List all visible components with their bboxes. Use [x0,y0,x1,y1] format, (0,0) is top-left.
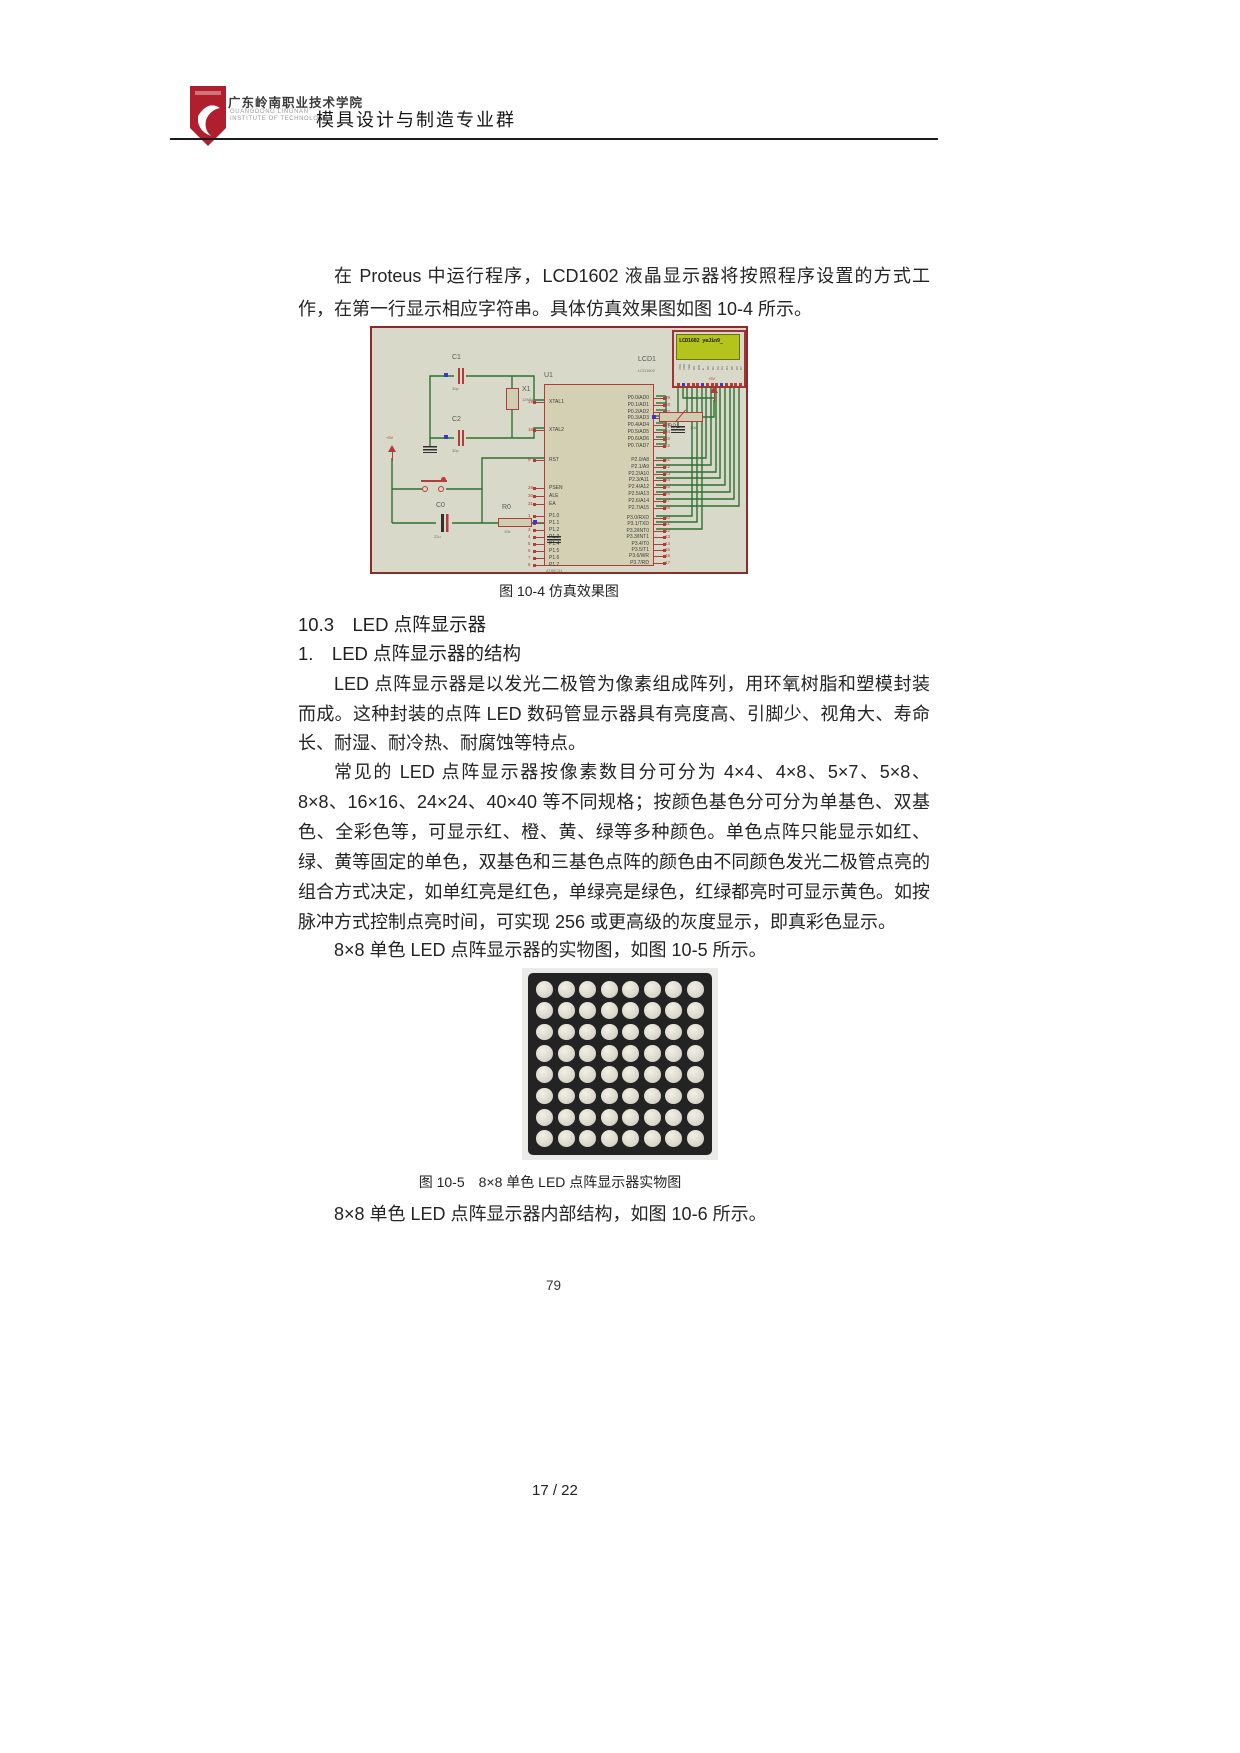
led-dot [536,1088,553,1105]
ground-r0-icon [547,536,561,544]
led-dot [536,1045,553,1062]
college-name-english: GUANGDONG LINGNAN INSTITUTE OF TECHNOLOG… [230,109,328,123]
led-dot [601,1002,618,1019]
led-dot [665,1088,682,1105]
u1-pin-p1-6: 7P1.6 [545,555,559,561]
r0-ref-label: R0 [502,504,511,511]
led-dot [558,1045,575,1062]
led-dot [687,1109,704,1126]
c0-capacitor [438,514,451,532]
led-dot [622,1088,639,1105]
led-dot [665,1002,682,1019]
led-dot [536,1130,553,1147]
led-dot [536,981,553,998]
figure-10-5-caption: 图 10-5 8×8 单色 LED 点阵显示器实物图 [370,1172,730,1192]
lcd-ref-label: LCD1 [638,356,656,363]
led-dot [665,1045,682,1062]
c0-value-label: 22u [434,534,441,539]
u1-pin-p2-5-a13: 26P2.5/A13 [628,491,653,497]
paragraph-5: 8×8 单色 LED 点阵显示器内部结构，如图 10-6 所示。 [298,1200,930,1230]
u1-pin-p3-3-int1: 13P3.3/INT1 [626,534,653,540]
u1-pin-rst: 9RST [545,457,559,463]
subsection-title-1: 1. LED 点阵显示器的结构 [298,640,521,666]
r0-pad [533,520,537,524]
c1-value-label: 30p [452,386,459,391]
lcd-screen: LCD1602 yeJin9_ [676,334,740,360]
led-dot [687,1024,704,1041]
led-dot [536,1002,553,1019]
led-dot [644,1024,661,1041]
u1-pin-p0-4-ad4: 35P0.4/AD4 [628,422,653,428]
u1-pin-p2-0-a8: 21P2.0/A8 [631,457,653,463]
u1-pin-p3-1-txd: 11P3.1/TXD [627,521,653,527]
c0-ref-label: C0 [436,502,445,509]
led-dot [622,981,639,998]
led-dot [687,1066,704,1083]
document-page: 广东岭南职业技术学院 GUANGDONG LINGNAN INSTITUTE O… [0,0,1240,1753]
u1-pin-p0-6-ad6: 33P0.6/AD6 [628,436,653,442]
paragraph-1: 在 Proteus 中运行程序，LCD1602 液晶显示器将按照程序设置的方式工… [298,260,930,326]
ground-rp1-icon [671,426,685,434]
led-dot [622,1066,639,1083]
led-dot [601,1109,618,1126]
plus5v-right-label: +5V [708,376,715,381]
u1-pin-p2-1-a9: 22P2.1/A9 [631,464,653,470]
led-dot [558,981,575,998]
led-dot [644,1130,661,1147]
c2-capacitor [454,430,466,446]
led-dot [558,1066,575,1083]
led-dot [579,1002,596,1019]
c2-pad [444,435,448,439]
u1-pin-p0-7-ad7: 32P0.7/AD7 [628,443,653,449]
u1-ref-label: U1 [544,372,553,379]
led-dot [644,981,661,998]
led-dot [665,1109,682,1126]
led-dot [536,1109,553,1126]
r0-value-label: 10k [504,529,510,534]
led-dot [558,1088,575,1105]
header-title: 模具设计与制造专业群 [316,106,516,132]
led-dot [579,981,596,998]
led-dot [579,1088,596,1105]
book-page-number: 79 [546,1278,561,1293]
u1-pin-p0-1-ad1: 38P0.1/AD1 [628,402,653,408]
c1-pad [444,373,448,377]
u1-pin-p1-1: 2P1.1 [545,520,559,526]
led-dot [579,1024,596,1041]
u1-pin-p2-6-a14: 27P2.6/A14 [628,498,653,504]
u1-pin-p3-7-rd: 17P3.7/RD [630,560,653,566]
u1-pin-p1-5: 6P1.5 [545,548,559,554]
plus5v-left-label: +5V [386,435,393,440]
led-dot [579,1130,596,1147]
c2-value-label: 30p [452,448,459,453]
u1-pin-p3-6-wr: 16P3.6/WR [629,553,653,559]
led-dot [601,981,618,998]
lcd-pin-d7: D7 [738,362,743,386]
r0-resistor [498,518,532,527]
led-dot [687,1130,704,1147]
led-dot [536,1024,553,1041]
led-dot [665,1024,682,1041]
u1-pin-p2-7-a15: 28P2.7/A15 [628,505,653,511]
c1-ref-label: C1 [452,354,461,361]
u1-pin-p0-0-ad0: 39P0.0/AD0 [628,395,653,401]
lcd-type-label: LCD1602 [638,368,655,373]
led-dot [644,1045,661,1062]
led-dot [687,1045,704,1062]
led-dot [601,1066,618,1083]
u1-pin-p1-2: 3P1.2 [545,527,559,533]
college-en-line2: INSTITUTE OF TECHNOLOGY [230,116,328,123]
section-title-10-3: 10.3 LED 点阵显示器 [298,611,486,637]
x1-value-label: 12MHz [522,397,535,402]
led-dot [687,1002,704,1019]
u1-pin-p0-5-ad5: 34P0.5/AD5 [628,429,653,435]
led-dot [558,1130,575,1147]
figure-10-4-caption: 图 10-4 仿真效果图 [370,581,748,601]
c2-ref-label: C2 [452,416,461,423]
document-page-number: 17 / 22 [532,1482,578,1499]
led-dot [687,1088,704,1105]
c1-capacitor [454,368,466,384]
led-dot [665,1066,682,1083]
led-matrix [528,973,712,1155]
paragraph-3: 常见的 LED 点阵显示器按像素数目分可分为 4×4、4×8、5×7、5×8、8… [298,757,930,937]
u1-pin-xtal2: 18XTAL2 [545,427,564,433]
led-dot [622,1045,639,1062]
college-logo [190,86,226,146]
figure-10-5-led-matrix-photo [522,968,718,1160]
u1-pin-ea: 31EA [545,501,556,507]
led-dot [579,1045,596,1062]
u1-pin-p0-3-ad3: 36P0.3/AD3 [628,415,653,421]
college-en-line1: GUANGDONG LINGNAN [230,109,328,116]
lcd-screen-text: LCD1602 yeJin9_ [679,338,739,344]
led-dot [558,1109,575,1126]
shield-logo-icon [190,86,226,146]
led-dot [622,1024,639,1041]
led-dot [579,1109,596,1126]
led-dot [665,981,682,998]
u1-pin-psen: 29PSEN [545,485,563,491]
led-dot [622,1109,639,1126]
led-dot [558,1002,575,1019]
led-dot [644,1109,661,1126]
led-dot [601,1088,618,1105]
led-dot [579,1066,596,1083]
paragraph-4: 8×8 单色 LED 点阵显示器的实物图，如图 10-5 所示。 [298,936,930,966]
u1-pin-ale: 30ALE [545,493,558,499]
figure-10-4-schematic: U1 19XTAL118XTAL29RST29PSEN30ALE31EA1P1.… [370,326,748,574]
led-dot [644,1066,661,1083]
led-dot [665,1130,682,1147]
u1-type-label: AT89C51 [546,568,563,573]
header-rule [170,138,938,140]
led-dot [622,1002,639,1019]
led-dot [622,1130,639,1147]
led-dot [644,1088,661,1105]
led-dot [536,1066,553,1083]
x1-crystal [506,388,519,410]
led-dot [601,1024,618,1041]
rp1-value-label: 10k [690,425,696,430]
plus5v-right-symbol: +5V [710,382,719,402]
led-dot [687,981,704,998]
plus5v-left-symbol: +5V [388,441,397,461]
led-dot [644,1002,661,1019]
u1-pin-p2-4-a12: 25P2.4/A12 [628,484,653,490]
led-dot [558,1024,575,1041]
led-dot [601,1045,618,1062]
led-dot [601,1130,618,1147]
rp1-pad [652,415,656,419]
ground-left-icon [423,446,437,454]
u1-pin-p2-3-a11: 24P2.3/A11 [629,477,653,483]
u1-pin-p1-0: 1P1.0 [545,513,559,519]
x1-ref-label: X1 [522,386,531,393]
paragraph-2: LED 点阵显示器是以发光二极管为像素组成阵列，用环氧树脂和塑模封装而成。这种封… [298,670,930,759]
u1-pin-xtal1: 19XTAL1 [545,399,564,405]
